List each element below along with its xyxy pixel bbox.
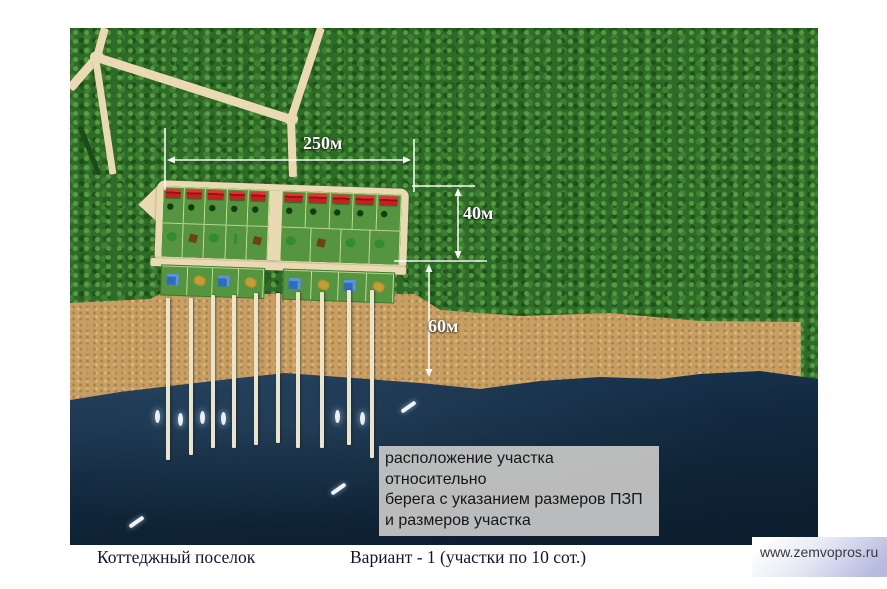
tree-icon [167,233,176,241]
note-box: расположение участка относительно берега… [379,446,659,536]
brown-house [316,238,326,248]
tree-icon [310,208,316,214]
tree-icon [375,240,384,248]
cottage-plot [370,230,401,265]
cottage-plot [305,191,330,228]
tree-icon [210,205,216,211]
tree-icon [334,209,340,215]
yellow-house [192,274,207,288]
road-junction [284,113,298,125]
tree-icon [188,204,194,210]
boat-icon [155,410,160,423]
watermark-url: www.zemvopros.ru [752,537,887,577]
cottage-plot [338,272,366,302]
cottage-plot [183,223,205,258]
cottage-plot [161,265,187,295]
red-roof-house [166,188,181,198]
brown-house [252,236,262,246]
cottage-plot [226,189,248,226]
cottage-plot [184,187,206,224]
pier [166,298,170,460]
blue-house [288,278,300,289]
tree-icon [252,206,258,212]
red-roof-house [285,193,303,203]
tree-icon [209,234,218,242]
tree-icon [381,211,387,217]
pier [347,290,351,445]
blue-house [218,275,230,286]
red-roof-house [356,195,374,205]
dimension-label-beach-depth: 60м [428,316,458,337]
brown-house [189,234,199,244]
tree-icon [231,206,237,212]
red-roof-house [308,193,326,203]
pier [276,293,280,443]
boat-icon [178,413,183,426]
yellow-house [316,278,331,292]
boat-icon [200,411,205,424]
cottage-plot [212,267,238,297]
tree-icon [167,204,173,210]
cottage-plot [163,186,185,223]
red-roof-house [250,191,265,201]
cottage-plot [340,229,371,264]
cottage-plot [187,266,213,296]
pier [370,290,374,458]
note-line: берега с указанием размеров ПЗП [385,490,653,511]
red-roof-house [208,190,223,200]
red-roof-house [332,194,350,204]
red-roof-house [229,191,244,201]
tree-icon [286,237,295,245]
boat-icon [221,412,226,425]
cottage-plot [329,192,354,229]
cottage-plot [377,194,402,231]
road-junction [90,51,104,63]
tree-icon [234,234,237,244]
pier [320,292,324,448]
blue-house [167,274,179,285]
cottage-plot [353,193,378,230]
boat-icon [335,410,340,423]
dimension-label-width: 250м [303,133,342,154]
cottage-plot [247,189,269,226]
pier [254,293,258,445]
pier [296,292,300,448]
cottage-plot [282,191,307,228]
tree-icon [357,210,363,216]
cottage-plot [205,188,227,225]
cottage-plot [280,227,311,262]
note-line: и размеров участка [385,511,653,532]
cottage-plot [310,228,341,263]
tree-icon [345,239,354,247]
dimension-label-plot-depth: 40м [463,203,493,224]
cottage-plot [204,224,226,259]
cottage-plot [162,222,184,257]
cottage-plot [238,268,264,298]
cottage-plot [246,225,268,260]
red-roof-house [187,189,202,199]
cottage-settlement [139,176,415,307]
caption-variant: Вариант - 1 (участки по 10 сот.) [350,547,586,568]
pier [189,298,193,455]
red-roof-house [380,196,398,206]
yellow-house [243,276,258,290]
cottage-plot [225,225,247,260]
boat-icon [360,412,365,425]
tree-icon [286,208,292,214]
cottage-plot [311,271,339,301]
pier [232,295,236,448]
note-line: расположение участка относительно [385,449,653,490]
pier [211,295,215,448]
caption-settlement: Коттеджный поселок [97,547,255,568]
